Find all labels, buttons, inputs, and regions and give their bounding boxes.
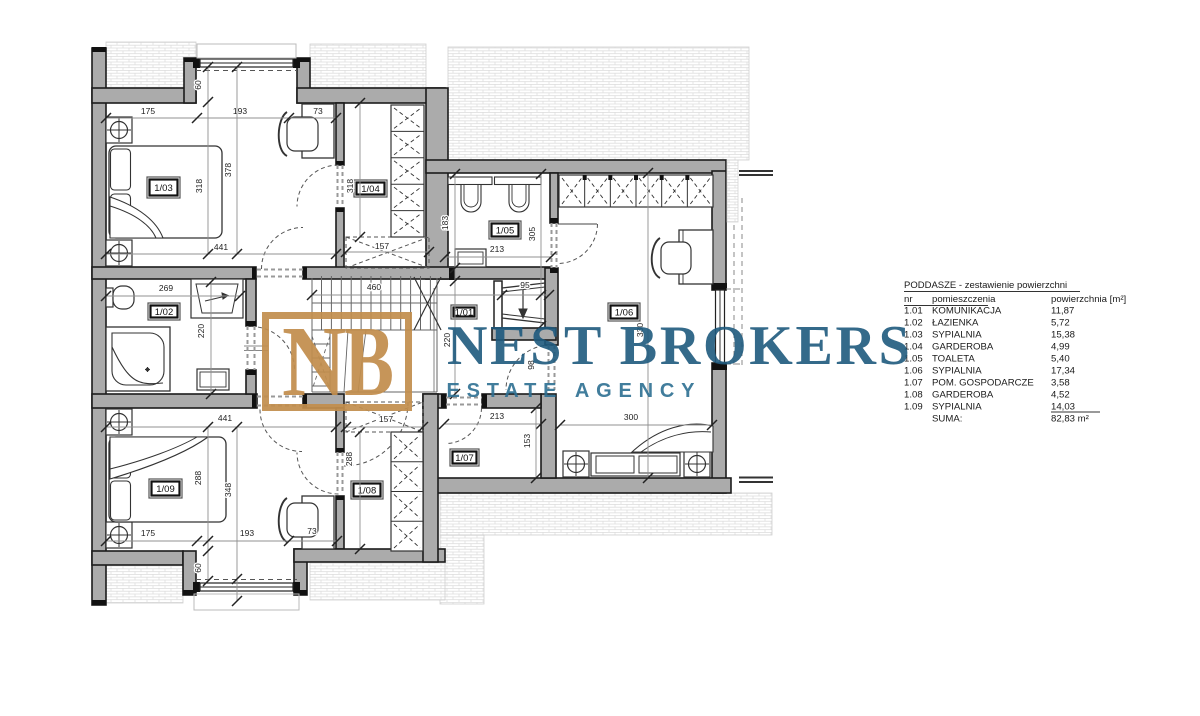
svg-text:1/08: 1/08 (358, 485, 377, 496)
svg-text:4,52: 4,52 (1051, 390, 1070, 401)
svg-text:288: 288 (193, 471, 203, 485)
svg-text:193: 193 (233, 106, 247, 116)
svg-text:powierzchnia [m²]: powierzchnia [m²] (1051, 294, 1126, 305)
svg-text:ESTATE AGENCY: ESTATE AGENCY (447, 380, 702, 402)
svg-text:183: 183 (440, 216, 450, 230)
svg-text:60: 60 (193, 563, 203, 573)
svg-text:NEST BROKERS: NEST BROKERS (447, 315, 913, 377)
svg-text:213: 213 (490, 411, 504, 421)
svg-text:175: 175 (141, 528, 155, 538)
svg-text:5,72: 5,72 (1051, 318, 1070, 329)
svg-text:73: 73 (307, 526, 317, 536)
svg-text:4,99: 4,99 (1051, 342, 1070, 353)
svg-text:82,83 m²: 82,83 m² (1051, 414, 1090, 425)
svg-text:460: 460 (367, 282, 381, 292)
svg-text:pomieszczenia: pomieszczenia (932, 294, 996, 305)
svg-text:318: 318 (345, 179, 355, 193)
svg-text:11,87: 11,87 (1051, 306, 1074, 317)
svg-text:220: 220 (196, 324, 206, 338)
svg-text:1/05: 1/05 (496, 225, 515, 236)
svg-text:288: 288 (344, 452, 354, 466)
svg-text:60: 60 (193, 80, 203, 90)
svg-text:1/04: 1/04 (361, 184, 380, 195)
svg-text:213: 213 (490, 244, 504, 254)
svg-text:175: 175 (141, 106, 155, 116)
svg-text:1/02: 1/02 (155, 307, 174, 318)
svg-text:3,58: 3,58 (1051, 378, 1070, 389)
svg-text:305: 305 (527, 227, 537, 241)
svg-text:157: 157 (375, 241, 389, 251)
svg-text:1.08: 1.08 (904, 390, 923, 401)
svg-text:441: 441 (218, 413, 232, 423)
svg-text:15,38: 15,38 (1051, 330, 1075, 341)
svg-text:TOALETA: TOALETA (932, 354, 975, 365)
svg-text:348: 348 (223, 483, 233, 497)
svg-text:1/09: 1/09 (156, 484, 175, 495)
svg-text:318: 318 (194, 179, 204, 193)
svg-text:KOMUNIKACJA: KOMUNIKACJA (932, 306, 1002, 317)
svg-text:nr: nr (904, 294, 913, 305)
svg-text:GARDEROBA: GARDEROBA (932, 342, 994, 353)
svg-text:14,03: 14,03 (1051, 402, 1075, 413)
svg-text:SYPIALNIA: SYPIALNIA (932, 402, 982, 413)
svg-text:193: 193 (240, 528, 254, 538)
svg-text:95: 95 (520, 280, 530, 290)
svg-text:B: B (344, 306, 394, 417)
svg-text:1/03: 1/03 (154, 183, 173, 194)
svg-text:300: 300 (624, 412, 638, 422)
svg-text:378: 378 (223, 163, 233, 177)
svg-text:SUMA:: SUMA: (932, 414, 962, 425)
svg-text:N: N (282, 305, 346, 418)
svg-text:5,40: 5,40 (1051, 354, 1070, 365)
svg-text:269: 269 (159, 283, 173, 293)
svg-text:1/07: 1/07 (455, 453, 474, 464)
svg-text:POM. GOSPODARCZE: POM. GOSPODARCZE (932, 378, 1034, 389)
svg-text:SYPIALNIA: SYPIALNIA (932, 330, 982, 341)
svg-text:GARDEROBA: GARDEROBA (932, 390, 994, 401)
svg-text:153: 153 (522, 434, 532, 448)
svg-text:441: 441 (214, 242, 228, 252)
svg-text:ŁAZIENKA: ŁAZIENKA (932, 318, 979, 329)
svg-text:17,34: 17,34 (1051, 366, 1076, 377)
svg-text:PODDASZE - zestawienie powierz: PODDASZE - zestawienie powierzchni (904, 280, 1067, 291)
svg-text:73: 73 (313, 106, 323, 116)
svg-text:SYPIALNIA: SYPIALNIA (932, 366, 982, 377)
svg-text:1.07: 1.07 (904, 378, 923, 389)
svg-text:1.09: 1.09 (904, 402, 923, 413)
